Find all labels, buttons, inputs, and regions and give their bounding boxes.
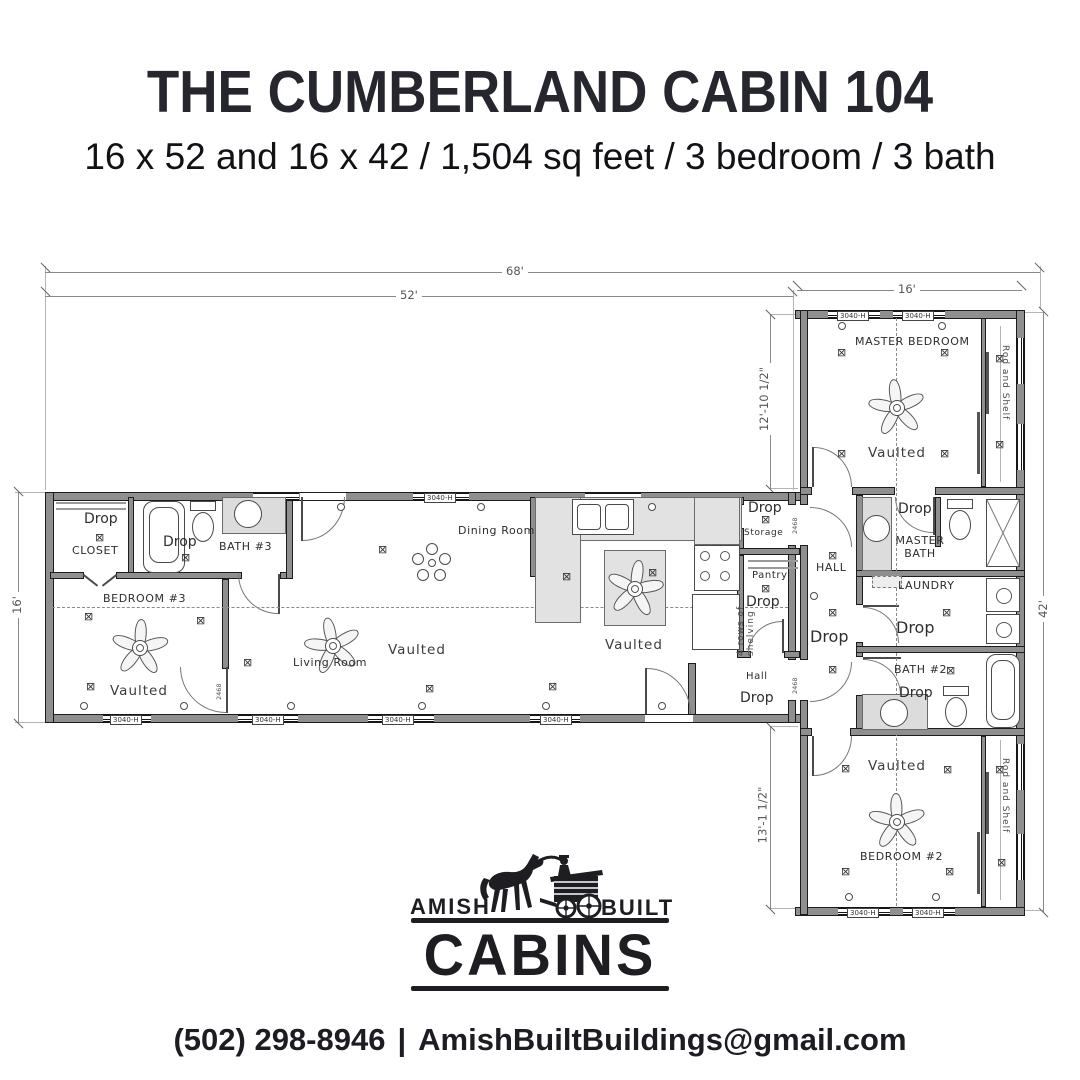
kitchen-counter [694, 497, 740, 545]
outlet-symbol: ⊠ [837, 348, 846, 358]
window-size-tag: 3040-H [424, 493, 456, 503]
master-bedroom-label: MASTER BEDROOM [855, 335, 970, 348]
dimension-label: 13'-1 1/2" [755, 783, 769, 848]
door-leaf [278, 574, 280, 614]
ceiling-fan [865, 376, 929, 440]
window [1016, 744, 1025, 790]
shower-x [986, 499, 1020, 567]
outlet-symbol: ⊠ [95, 533, 104, 543]
outlet-symbol: ⊠ [648, 568, 657, 578]
master-vaulted-label: Vaulted [868, 445, 926, 461]
window-size-tag: 3040-H [912, 908, 944, 918]
horse-and-wagon-icon [476, 848, 606, 924]
kitchen-vaulted-label: Vaulted [605, 637, 663, 653]
dimension-label: 42' [1036, 596, 1050, 622]
bath2-drop-label: Drop [899, 685, 933, 701]
ridge-line [52, 607, 788, 608]
outlet-symbol: ⊠ [946, 666, 955, 676]
wall [50, 572, 84, 579]
dryer [986, 614, 1020, 644]
extension-line [1025, 312, 1043, 313]
wall-light [477, 503, 485, 511]
sink [234, 500, 262, 528]
outlet-symbol: ⊠ [243, 658, 252, 668]
outlet-symbol: ⊠ [940, 449, 949, 459]
hall-drop-label: Drop [740, 690, 774, 706]
door-swing [238, 574, 278, 614]
bedroom3-vaulted-label: Vaulted [110, 683, 168, 699]
dining-chandelier [412, 543, 452, 583]
outlet-symbol: ⊠ [181, 553, 190, 563]
outlet-symbol: ⊠ [841, 764, 850, 774]
pantry-shelving-label: 4 rows of shelving [736, 558, 756, 656]
window [1016, 338, 1025, 384]
wall [737, 548, 800, 555]
wall-light [810, 592, 818, 600]
wing-hall-drop-label: Drop [810, 627, 849, 646]
outlet-symbol: ⊠ [828, 665, 837, 675]
email-address: AmishBuiltBuildings@gmail.com [418, 1022, 906, 1057]
washer [986, 578, 1020, 612]
wall [286, 497, 293, 579]
dimension-label: 12'-10 1/2" [757, 363, 771, 435]
bifold-door [83, 574, 98, 587]
wall-light [938, 322, 946, 330]
wall-light [542, 702, 550, 710]
wall [1016, 310, 1025, 916]
bedroom3-label: BEDROOM #3 [103, 592, 186, 605]
sink-basin [605, 504, 629, 530]
phone-number: (502) 298-8946 [173, 1022, 385, 1057]
contact-line: (502) 298-8946|AmishBuiltBuildings@gmail… [0, 1022, 1080, 1058]
wall [788, 545, 796, 660]
toilet-bowl [949, 510, 971, 540]
sliding-door [986, 352, 989, 414]
wall-light [658, 702, 666, 710]
outlet-symbol: ⊠ [942, 608, 951, 618]
bath3-label: BATH #3 [219, 540, 272, 553]
wing-hall-label: HALL [816, 561, 846, 574]
bathtub-inner [991, 660, 1015, 720]
wall [788, 700, 796, 723]
wall [852, 487, 895, 495]
wall [935, 487, 1025, 495]
door-leaf [226, 667, 228, 713]
window-size-tag: 3040-H [902, 311, 934, 321]
extension-line [1040, 266, 1041, 308]
door-swing [810, 507, 852, 547]
door-swing [863, 607, 899, 643]
poster: THE CUMBERLAND CABIN 104 16 x 52 and 16 … [0, 0, 1080, 1080]
outlet-symbol: ⊠ [378, 545, 387, 555]
outlet-symbol: ⊠ [425, 684, 434, 694]
laundry-drop-label: Drop [896, 618, 935, 637]
burner [700, 571, 710, 581]
extension-line [770, 908, 798, 909]
dimension-label: 16' [10, 592, 24, 618]
door-size-tag: 2468 [791, 677, 799, 694]
door-swing [814, 447, 852, 487]
sliding-door [977, 832, 980, 894]
extension-line [45, 266, 46, 490]
closet-label: CLOSET [72, 544, 118, 557]
window [1016, 834, 1025, 880]
wall-light [287, 702, 295, 710]
dimension-label: 68' [502, 264, 528, 278]
bedroom2-closet-label: Rod and Shelf [1000, 758, 1010, 888]
wall [800, 545, 808, 660]
wall [856, 646, 1025, 653]
sink [880, 699, 908, 727]
logo-cabins-text: CABINS [380, 920, 700, 988]
bath2-label: BATH #2 [894, 663, 947, 676]
wall-light [648, 503, 656, 511]
living-vaulted-label: Vaulted [388, 642, 446, 658]
dimension-13ft [770, 727, 771, 909]
refrigerator [692, 594, 740, 650]
toilet-tank [943, 686, 969, 696]
bedroom2-vaulted-label: Vaulted [868, 758, 926, 774]
burner [720, 551, 730, 561]
logo-amish-text: AMISH [410, 894, 491, 920]
wall [800, 728, 812, 736]
wall-light [80, 702, 88, 710]
wall-light [838, 322, 846, 330]
closet-drop-label: Drop [84, 511, 118, 527]
dimension-label: 16' [894, 282, 920, 296]
door-leaf [933, 497, 935, 535]
storage-drop-label: Drop [748, 500, 782, 516]
door-size-tag: 2468 [791, 517, 799, 534]
master-closet-label: Rod and Shelf [1000, 345, 1010, 475]
outlet-symbol: ⊠ [84, 612, 93, 622]
sliding-door [986, 772, 989, 834]
pantry-label: Pantry [752, 570, 788, 581]
outlet-symbol: ⊠ [837, 449, 846, 459]
outlet-symbol: ⊠ [548, 682, 557, 692]
outlet-symbol: ⊠ [562, 572, 571, 582]
storage-label: Storage [744, 528, 783, 538]
bifold-door [102, 574, 117, 587]
outlet-symbol: ⊠ [943, 765, 952, 775]
wall [116, 572, 242, 579]
wall-light [845, 893, 853, 901]
dimension-label: 52' [396, 288, 422, 302]
laundry-label: LAUNDRY [898, 579, 955, 592]
sink [863, 515, 890, 542]
outlet-symbol: ⊠ [940, 348, 949, 358]
door-swing [647, 668, 691, 714]
wall [800, 310, 808, 505]
closet-shelf [56, 502, 126, 504]
burner [700, 551, 710, 561]
ceiling-fan [865, 790, 929, 854]
window-size-tag: 3040-H [540, 715, 572, 725]
window-size-tag: 3040-H [837, 311, 869, 321]
sliding-door [977, 412, 980, 474]
master-bath-drop-label: Drop [898, 501, 932, 517]
extension-line [770, 488, 798, 489]
hall-label: Hall [746, 671, 768, 682]
outlet-symbol: ⊠ [86, 682, 95, 692]
window-size-tag: 3040-H [847, 908, 879, 918]
wall [222, 579, 229, 669]
amish-built-cabins-logo: AMISH BUILT CABINS [380, 848, 700, 1000]
wall-light [932, 893, 940, 901]
outlet-symbol: ⊠ [841, 867, 850, 877]
bath3-drop-label: Drop [163, 534, 197, 550]
window [1016, 424, 1025, 470]
wall [128, 497, 134, 577]
extension-line [793, 290, 794, 490]
outlet-symbol: ⊠ [761, 515, 770, 525]
toilet-bowl [945, 697, 967, 727]
living-room-label: Living Room [293, 656, 367, 669]
wall [784, 651, 800, 658]
toilet-tank [190, 501, 216, 511]
separator: | [397, 1022, 406, 1057]
dining-room-label: Dining Room [458, 524, 535, 537]
outlet-symbol: ⊠ [761, 584, 770, 594]
master-bath-label: MASTER BATH [889, 534, 951, 560]
window-size-tag: 3040-H [252, 715, 284, 725]
door-leaf [782, 619, 784, 653]
wall-light [180, 702, 188, 710]
bedroom2-label: BEDROOM #2 [860, 850, 943, 863]
wall-light [337, 503, 345, 511]
wall-light [418, 702, 426, 710]
burner [720, 571, 730, 581]
wall [800, 487, 812, 495]
extension-line [770, 314, 798, 315]
dimension-68ft [45, 272, 1040, 273]
outlet-symbol: ⊠ [828, 608, 837, 618]
window-size-tag: 3040-H [382, 715, 414, 725]
door-opening [645, 715, 693, 722]
outlet-symbol: ⊠ [196, 616, 205, 626]
outlet-symbol: ⊠ [828, 551, 837, 561]
ceiling-fan [108, 616, 172, 680]
logo-divider [411, 986, 669, 991]
toilet-tank [947, 499, 973, 509]
sink-basin [577, 504, 601, 530]
closet-shelf [56, 508, 126, 510]
extension-line [770, 726, 798, 727]
outlet-symbol: ⊠ [945, 867, 954, 877]
window-size-tag: 3040-H [110, 715, 142, 725]
wall [788, 492, 796, 505]
